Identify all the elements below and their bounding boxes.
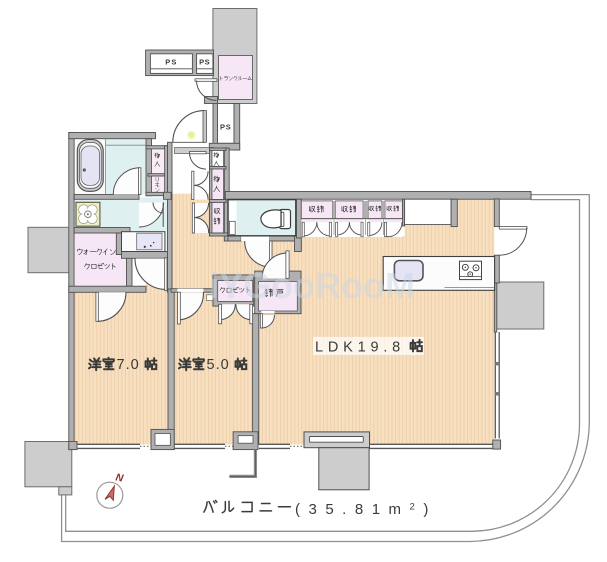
svg-text:PS: PS [199, 58, 210, 67]
svg-text:PS: PS [165, 58, 177, 67]
svg-text:5.0: 5.0 [207, 357, 230, 373]
svg-text:iYGooRooM: iYGooRooM [209, 265, 415, 306]
svg-text:LDK19.8: LDK19.8 [315, 340, 405, 356]
svg-text:PS: PS [220, 123, 232, 132]
svg-text:7.0: 7.0 [117, 357, 140, 373]
